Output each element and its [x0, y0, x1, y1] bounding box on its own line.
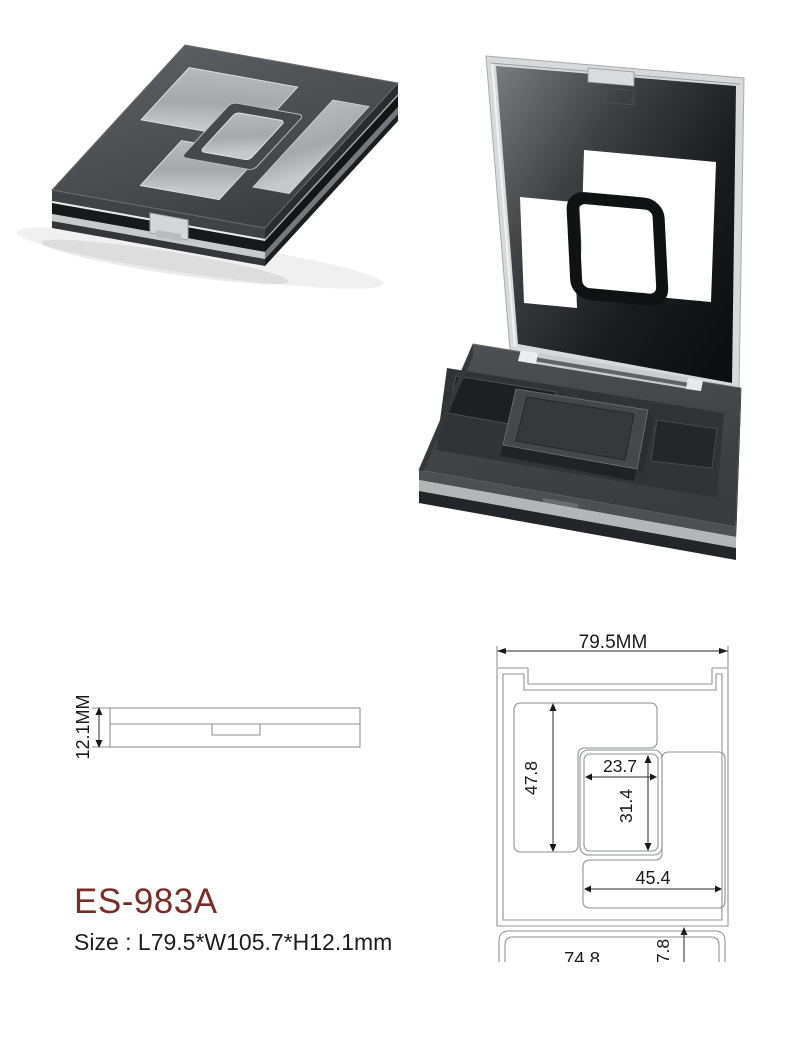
product-size: Size : L79.5*W105.7*H12.1mm	[74, 929, 392, 956]
right-pan-width-dimension: 45.4	[584, 868, 722, 893]
base-right-recess	[651, 420, 717, 468]
mirror-bar-right-clip	[686, 378, 703, 391]
product-code: ES-983A	[74, 882, 218, 922]
overall-width-label: 79.5MM	[579, 632, 648, 653]
left-pan-height-label: 47.8	[521, 761, 541, 795]
top-view-outline-outer	[497, 668, 728, 926]
top-view-outline-inner	[503, 674, 722, 920]
middle-pan-width-label: 23.7	[603, 756, 637, 776]
product-sheet: 12.1MM 79.5MM 47.8	[0, 0, 800, 1050]
side-view-height-label: 12.1MM	[73, 694, 93, 759]
left-pan-height-dimension: 47.8	[521, 703, 557, 852]
lid-width-label: 74.8	[564, 948, 600, 969]
open-compact-photo	[419, 56, 744, 560]
side-view-height-dimension: 12.1MM	[73, 694, 103, 759]
hinge-offset-dimension: 7.8	[653, 927, 688, 975]
closed-compact-photo	[14, 45, 398, 301]
open-lid	[486, 56, 744, 400]
lid-outline-outer	[499, 931, 725, 962]
right-pan-width-label: 45.4	[635, 868, 670, 888]
lid-outline-inner	[505, 937, 719, 962]
side-view-outline	[110, 708, 360, 747]
middle-pan-height-label: 31.4	[616, 789, 636, 823]
side-view-drawing: 12.1MM	[73, 694, 360, 759]
open-lid-center-window	[579, 205, 655, 293]
overall-width-dimension: 79.5MM	[497, 632, 728, 654]
top-view-drawing: 79.5MM 47.8 23.7 31.4 45.4	[497, 632, 728, 975]
hinge-offset-label: 7.8	[653, 939, 673, 963]
